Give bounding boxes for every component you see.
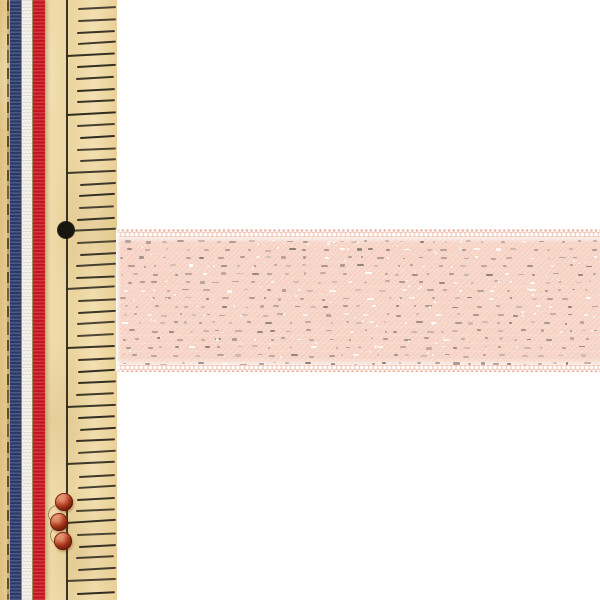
sparkle-dash [199,257,204,259]
sparkle-speck [467,339,469,341]
sparkle-dash [386,249,390,251]
sparkle-dash [257,331,262,333]
sparkle-speck [434,301,436,303]
sparkle-dash [367,298,374,300]
sparkle-dash [273,362,277,364]
sparkle-speck [492,299,494,301]
sparkle-dash [221,265,228,267]
sparkle-dash [326,314,331,316]
sparkle-dash [229,241,235,243]
sparkle-dash [426,347,433,349]
sparkle-dash [400,241,403,243]
sparkle-dash [170,264,175,266]
sparkle-speck [280,293,281,294]
sparkle-dash [274,264,277,266]
sparkle-speck [129,350,131,352]
sparkle-speck [408,285,410,287]
sparkle-dash [573,257,577,259]
sparkle-speck [445,322,446,323]
sparkle-dash [365,329,367,331]
ribbon-body [116,237,600,366]
sparkle-dash [459,290,461,292]
sparkle-dash [417,362,421,364]
sparkle-dash [287,241,293,243]
sparkle-dash [189,264,193,266]
sparkle-dash [303,256,305,258]
sparkle-dash [187,249,190,251]
sparkle-dash [293,281,299,283]
sparkle-dash [285,273,289,275]
sparkle-dash [394,354,399,356]
sparkle-dash [586,297,591,299]
sparkle-dash [343,305,348,307]
sparkle-dash [139,256,144,258]
sparkle-dash [249,240,255,242]
sparkle-dash [271,240,276,242]
sparkle-dash [548,258,550,260]
sparkle-dash [162,241,167,243]
sparkle-speck [555,284,556,285]
sparkle-speck [495,287,496,288]
sparkle-dash [298,289,300,291]
sparkle-dash [435,314,442,316]
sparkle-dash [273,305,279,307]
sparkle-dash [389,297,392,299]
sparkle-speck [554,274,555,275]
sparkle-speck [215,257,216,258]
sparkle-speck [327,243,329,245]
sparkle-dash [553,362,556,364]
sparkle-dash [252,345,258,347]
sparkle-dash [344,313,348,315]
sparkle-dash [379,290,386,292]
sparkle-speck [396,245,397,246]
sparkle-speck [213,265,215,267]
sparkle-dash [499,354,505,356]
sparkle-speck [216,338,218,340]
sparkle-dash [486,274,493,276]
sparkle-dash [475,256,478,258]
sparkle-dash [435,362,440,364]
sparkle-dash [471,282,474,284]
red-bead [50,513,68,531]
sparkle-dash [546,339,553,341]
sparkle-dash [427,273,429,275]
sparkle-dash [198,362,204,364]
sparkle-dash [302,249,306,251]
sparkle-dash [443,339,450,341]
sparkle-dash [123,339,126,341]
sparkle-dash [534,249,539,251]
sparkle-dash [203,289,210,291]
sparkle-dash [151,281,156,283]
sparkle-dash [592,249,597,251]
sparkle-dash [126,347,131,349]
sparkle-dash [483,354,485,356]
sparkle-dash [387,313,390,315]
sparkle-dash [439,265,443,267]
sparkle-dash [154,265,156,267]
sparkle-dash [464,274,469,276]
sparkle-speck [486,270,488,272]
sparkle-dash [295,306,300,308]
sparkle-dash [498,346,501,348]
sparkle-dash [453,347,457,349]
sparkle-dash [235,354,241,356]
sparkle-dash [499,337,503,339]
sparkle-dash [516,346,518,348]
sparkle-dash [310,306,316,308]
sparkle-dash [186,257,191,259]
sparkle-dash [473,248,480,250]
sparkle-dash [146,241,151,243]
sparkle-dash [289,248,296,250]
sparkle-speck [546,275,547,276]
sparkle-dash [403,258,405,260]
sparkle-dash [165,281,167,283]
sparkle-dash [365,272,372,274]
sparkle-speck [252,267,254,269]
sparkle-dash [201,339,204,341]
sparkle-dash [290,322,292,324]
sparkle-dash [550,313,556,315]
sparkle-speck [415,271,416,272]
sparkle-speck [284,243,286,245]
red-bead [55,493,73,511]
sparkle-dash [237,265,239,267]
sparkle-speck [521,311,523,313]
sparkle-speck [141,246,143,248]
sparkle-dash [545,290,547,292]
sparkle-dash [368,248,373,250]
sparkle-dash [285,362,289,364]
sparkle-dash [331,322,333,324]
sparkle-dash [203,273,208,275]
sparkle-speck [376,325,378,327]
sparkle-dash [174,321,178,323]
sparkle-dash [145,249,150,251]
sparkle-dash [300,298,304,300]
sparkle-dash [346,347,350,349]
sparkle-dash [198,240,204,242]
sparkle-dash [324,249,328,251]
sparkle-dash [501,241,505,243]
sparkle-speck [233,305,235,307]
sparkle-dash [199,322,202,324]
sparkle-dash [254,265,256,267]
sparkle-dash [348,256,352,258]
sparkle-dash [420,241,424,243]
sparkle-dash [221,272,226,274]
sparkle-dash [240,256,245,258]
sparkle-speck [335,291,336,292]
sparkle-dash [184,321,187,323]
sparkle-dash [547,298,553,300]
sparkle-dash [147,314,152,316]
sparkle-dash [558,289,562,291]
sparkle-dash [477,290,484,292]
sparkle-speck [399,298,400,299]
sparkle-dash [219,315,225,317]
sparkle-dash [278,298,282,300]
sparkle-dash [466,240,471,242]
sparkle-dash [510,297,512,299]
sparkle-speck [551,343,552,344]
sparkle-dash [580,321,585,323]
sparkle-dash [384,321,387,323]
sparkle-speck [174,294,176,296]
sparkle-dash [200,281,205,283]
sparkle-speck [283,313,284,314]
sparkle-dash [584,362,591,364]
ruler-hole [57,221,75,239]
sparkle-speck [323,327,324,328]
sparkle-dash [122,322,128,324]
sparkle-dash [405,354,408,356]
sparkle-dash [363,314,368,316]
sparkle-speck [261,358,263,360]
sparkle-dash [568,306,572,308]
sparkle-speck [571,355,572,356]
sparkle-dash [125,305,129,307]
sparkle-speck [243,337,244,338]
sparkle-dash [180,313,183,315]
sparkle-dash [457,313,460,315]
sparkle-dash [270,330,275,332]
sparkle-speck [193,299,194,300]
sparkle-speck [397,267,399,269]
sparkle-dash [311,346,317,348]
sparkle-speck [151,298,153,300]
sparkle-dash [396,315,401,317]
sparkle-dash [184,306,188,308]
sparkle-dash [530,282,535,284]
sparkle-dash [485,337,489,339]
sparkle-dash [169,331,175,333]
sparkle-dash [177,339,183,341]
sparkle-dash [585,289,589,291]
sparkle-dash [124,314,127,316]
sparkle-dash [569,248,573,250]
red-bead [54,532,72,550]
sparkle-dash [510,281,513,283]
sparkle-speck [435,342,437,344]
sparkle-dash [481,265,488,267]
sparkle-dash [414,305,416,307]
sparkle-dash [340,264,345,266]
sparkle-speck [341,261,343,263]
sparkle-speck [345,323,347,325]
sparkle-dash [252,273,258,275]
sparkle-dash [405,322,407,324]
sparkle-dash [570,264,573,266]
sparkle-dash [529,289,536,291]
sparkle-dash [350,331,355,333]
sparkle-speck [201,261,202,262]
sparkle-dash [440,249,447,251]
sparkle-dash [323,306,328,308]
sparkle-dash [593,240,596,242]
sparkle-speck [420,286,422,288]
sparkle-dash [286,331,290,333]
sparkle-dash [271,339,274,341]
sparkle-dash [532,274,535,276]
sparkle-dash [189,346,195,348]
sparkle-dash [482,321,488,323]
sparkle-dash [427,289,434,291]
sparkle-speck [435,252,437,254]
sparkle-dash [244,289,247,291]
sparkle-speck [282,275,283,276]
sparkle-dash [304,272,307,274]
sparkle-dash [281,256,286,258]
sparkle-speck [333,241,335,243]
sparkle-dash [123,363,126,365]
sparkle-dash [225,249,230,251]
sparkle-dash [544,322,550,324]
sparkle-speck [435,290,436,291]
sparkle-dash [579,346,585,348]
sparkle-dash [246,307,248,309]
sparkle-speck [203,314,205,316]
sparkle-speck [295,295,297,297]
sparkle-speck [177,252,178,253]
sparkle-dash [582,330,586,332]
sparkle-dash [265,250,271,252]
sparkle-dash [268,347,271,349]
sparkle-dash [343,273,347,275]
sparkle-speck [288,349,289,350]
sparkle-speck [154,320,156,322]
sparkle-speck [460,241,461,242]
sparkle-speck [510,270,511,271]
sparkle-dash [305,362,311,364]
sparkle-dash [355,289,361,291]
sparkle-dash [393,331,396,333]
sparkle-speck [486,348,488,350]
sparkle-dash [217,346,220,348]
sparkle-dash [271,281,274,283]
sparkle-dash [385,273,387,275]
sparkle-speck [532,294,534,296]
sparkle-dash [496,305,500,307]
sparkle-speck [498,281,499,282]
sparkle-dash [291,354,297,356]
sparkle-speck [291,336,293,338]
sparkle-dash [547,249,550,251]
sparkle-dash [463,356,469,358]
sparkle-dash [155,305,159,307]
picot-tips-bottom [116,370,600,373]
sparkle-dash [576,282,583,284]
sparkle-dash [464,347,469,349]
tricolor-stripe-white [22,0,33,600]
sparkle-speck [432,354,434,356]
sparkle-dash [132,354,137,356]
sparkle-speck [387,257,388,258]
sparkle-speck [513,318,515,320]
product-photo [0,0,600,600]
sparkle-dash [148,347,153,349]
sparkle-dash [269,355,274,357]
sparkle-dash [286,265,291,267]
sparkle-dash [182,289,189,291]
sparkle-dash [523,241,525,243]
sparkle-speck [376,308,377,309]
sparkle-dash [536,305,541,307]
sparkle-speck [406,280,407,281]
sparkle-dash [464,258,469,260]
sparkle-dash [409,297,414,299]
sparkle-dash [232,338,236,340]
sparkle-dash [364,240,368,242]
sparkle-dash [441,331,443,333]
sparkle-speck [222,332,224,334]
sparkle-dash [218,257,224,259]
sparkle-dash [326,330,331,332]
sparkle-speck [432,324,433,325]
sparkle-speck [382,333,383,334]
sparkle-dash [568,314,571,316]
sparkle-speck [593,316,595,318]
sparkle-speck [355,305,356,306]
sparkle-dash [136,306,139,308]
sparkle-dash [364,282,368,284]
sparkle-dash [586,266,592,268]
sparkle-dash [212,282,218,284]
sparkle-dash [496,248,501,250]
sparkle-dash [593,273,596,275]
sparkle-dash [307,290,313,292]
sparkle-dash [581,354,586,356]
sparkle-dash [309,356,314,358]
sparkle-dash [309,339,314,341]
sparkle-dash [551,265,554,267]
sparkle-dash [560,331,563,333]
sparkle-dash [153,289,155,291]
sparkle-speck [262,257,263,258]
sparkle-dash [371,338,374,340]
sparkle-dash [498,330,503,332]
sparkle-dash [481,241,483,243]
sparkle-dash [445,241,448,243]
sparkle-speck [315,342,317,344]
tricolor-stripe-blue [10,0,21,600]
sparkle-dash [565,323,567,325]
sparkle-dash [422,266,425,268]
sparkle-dash [541,329,544,331]
sparkle-dash [532,298,537,300]
sparkle-dash [247,321,251,323]
sparkle-dash [356,322,362,324]
sparkle-dash [586,338,589,340]
sparkle-dash [369,321,374,323]
ribbon-sparkles [116,237,600,366]
sparkle-dash [318,282,321,284]
sparkle-dash [343,298,349,300]
sparkle-dash [128,265,134,267]
sparkle-dash [507,290,510,292]
sparkle-dash [473,314,480,316]
sparkle-dash [382,362,386,364]
sparkle-speck [374,346,376,348]
sparkle-speck [257,243,259,245]
sparkle-dash [421,355,427,357]
sparkle-speck [160,337,162,339]
sparkle-dash [320,272,326,274]
sparkle-dash [527,339,532,341]
sparkle-speck [427,352,429,354]
